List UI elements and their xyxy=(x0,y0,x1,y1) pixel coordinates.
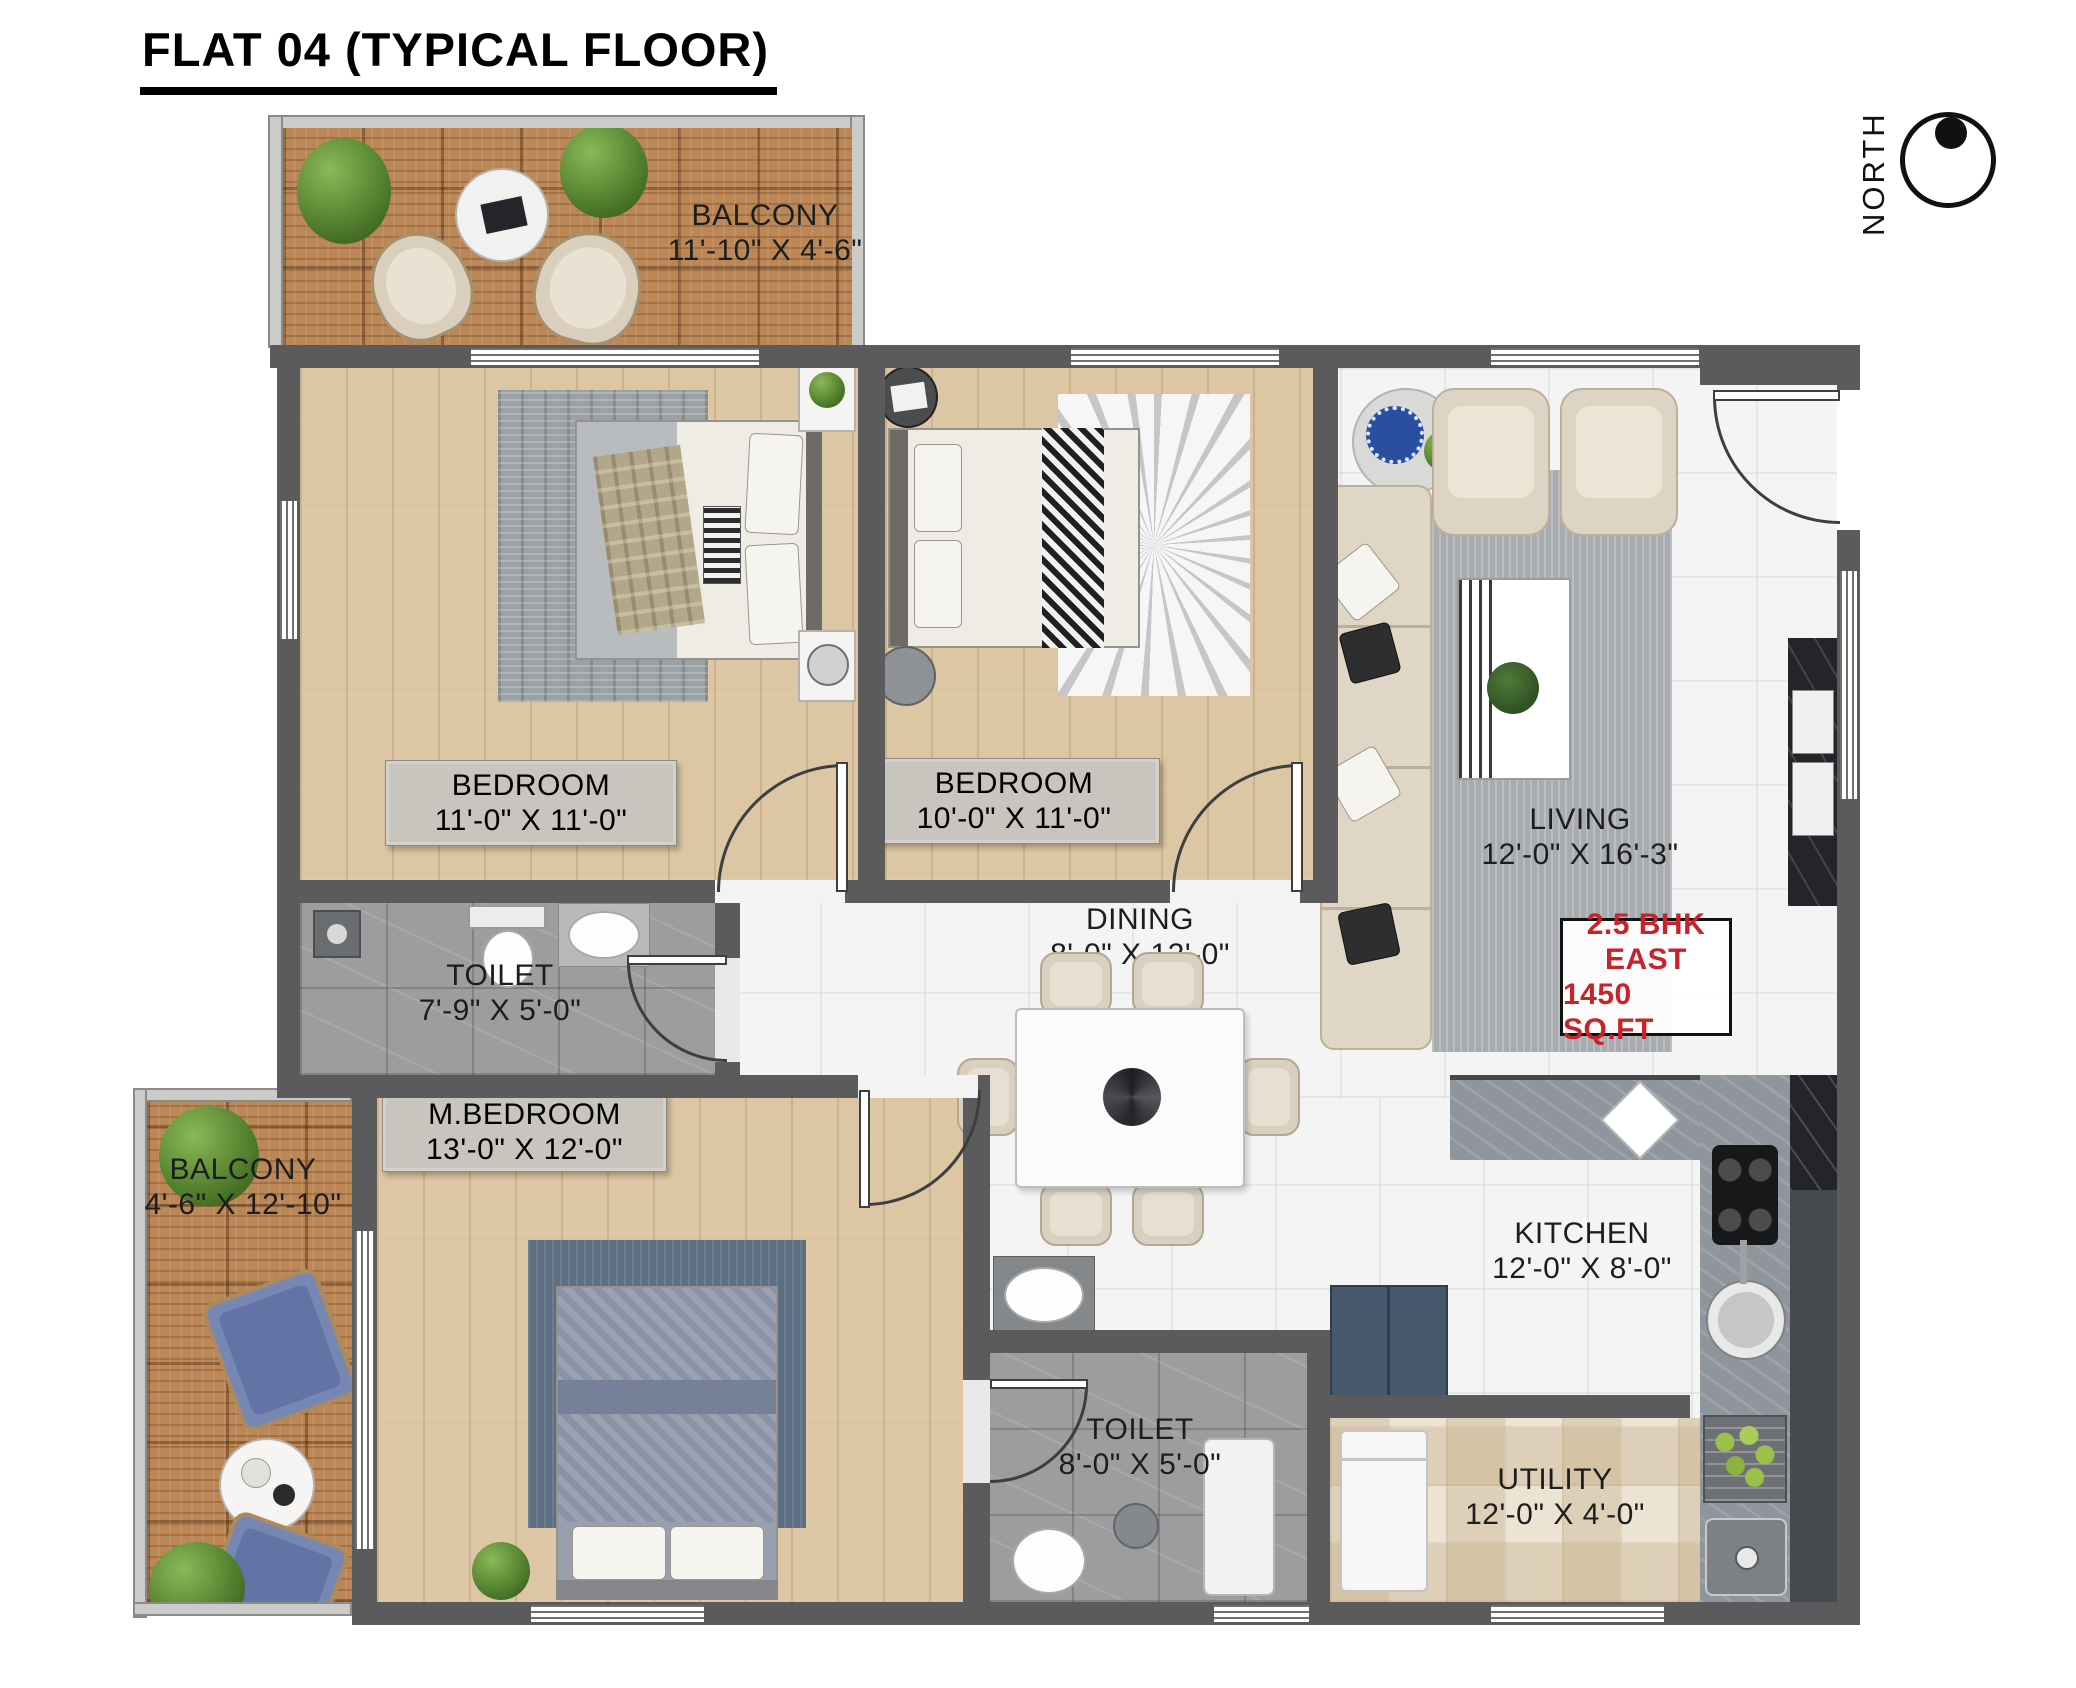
kitchen-label: KITCHEN 12'-0" X 8'-0" xyxy=(1492,1216,1672,1286)
bed-fold-band xyxy=(558,1380,776,1414)
unit-area: 1450 SQ.FT xyxy=(1563,977,1729,1047)
bed-checkered-runner xyxy=(1042,428,1104,648)
bed-headboard xyxy=(556,1580,778,1600)
bed-headboard xyxy=(806,420,822,662)
bed-headboard xyxy=(890,430,908,646)
window-living xyxy=(1490,347,1700,366)
round-mirror-icon xyxy=(878,366,938,428)
kitchen-backsplash xyxy=(1790,1075,1837,1602)
bedroom1-door-leaf xyxy=(836,762,848,892)
kitchen-counter xyxy=(1450,1075,1700,1160)
stove-hob-icon xyxy=(1712,1145,1778,1245)
window-toilet2-bottom xyxy=(1213,1604,1310,1623)
window-utility-bottom xyxy=(1490,1604,1665,1623)
dining-chair xyxy=(1132,952,1204,1016)
pan-handle-icon xyxy=(1740,1240,1747,1284)
wall-entry-corner xyxy=(1700,345,1860,385)
tv-cabinet-door xyxy=(1792,762,1834,836)
sofa-pillow xyxy=(1337,902,1401,966)
toilet1-door-leaf xyxy=(627,955,727,965)
sofa-pillow xyxy=(1338,621,1402,685)
coffee-table xyxy=(1457,578,1571,780)
bedroom2-wardrobe-label: BEDROOM 10'-0" X 11'-0" xyxy=(868,758,1160,844)
marble-splash xyxy=(1790,1075,1837,1190)
window-bedroom2 xyxy=(1070,347,1280,366)
balcony-lounge-chair xyxy=(199,1265,352,1435)
kitchen-cabinet xyxy=(1330,1285,1448,1397)
bed-pillow xyxy=(914,444,962,532)
tv-cabinet-door xyxy=(1792,690,1834,754)
veggie-sink xyxy=(1703,1415,1787,1503)
plate-icon xyxy=(273,1484,295,1506)
dining-chair xyxy=(1040,1182,1112,1246)
decor-plate-icon xyxy=(1366,406,1424,464)
pan-icon xyxy=(1708,1282,1784,1358)
compass-north-dot-icon xyxy=(1935,117,1967,149)
wash-counter xyxy=(993,1256,1095,1332)
bed-pillow xyxy=(744,433,803,536)
wall-bedroom-divider xyxy=(858,368,885,880)
nightstand xyxy=(798,362,856,432)
book-icon xyxy=(480,196,527,234)
bed-pillow xyxy=(572,1526,666,1580)
decor-plate-icon xyxy=(1600,1080,1679,1159)
wall-left-upper xyxy=(277,345,300,1098)
toilet1-label: TOILET 7'-9" X 5'-0" xyxy=(419,958,582,1028)
top-balcony-parapet-left xyxy=(268,115,283,348)
wall-toilet2-right xyxy=(1307,1353,1330,1602)
utility-label: UTILITY 12'-0" X 4'-0" xyxy=(1465,1462,1645,1532)
plant-icon xyxy=(472,1542,530,1600)
bed-pillow xyxy=(914,540,962,628)
balcony-table xyxy=(455,168,549,262)
floor-plan-canvas: FLAT 04 (TYPICAL FLOOR) NORTH BALCONY 11… xyxy=(0,0,2076,1688)
mirror-icon xyxy=(807,644,849,686)
master-bed xyxy=(556,1286,778,1600)
master-door-leaf xyxy=(859,1090,870,1208)
compass-circle-icon xyxy=(1900,112,1996,208)
kitchen-sink xyxy=(1705,1518,1787,1596)
nightstand xyxy=(798,630,856,702)
bedroom1-bed xyxy=(575,420,822,660)
plant-icon xyxy=(1487,662,1539,714)
plant-icon xyxy=(809,372,845,408)
wall-right xyxy=(1837,345,1860,1625)
unit-info-box: 2.5 BHK EAST 1450 SQ.FT xyxy=(1560,918,1732,1036)
wall-bedroom2-living xyxy=(1313,368,1338,903)
toilet-tank xyxy=(468,905,546,929)
unit-facing: EAST xyxy=(1605,942,1687,977)
wall-toilet2-top xyxy=(963,1330,1330,1353)
bedroom2-bed xyxy=(888,428,1140,648)
shower-head-icon xyxy=(327,924,347,944)
dining-chair xyxy=(1238,1058,1300,1136)
bedroom1-wardrobe-label: BEDROOM 11'-0" X 11'-0" xyxy=(385,760,677,846)
drain-icon xyxy=(1735,1546,1759,1570)
bed-pillow xyxy=(670,1526,764,1580)
balcony-plant-icon xyxy=(560,128,648,218)
entrance-opening xyxy=(1837,390,1860,530)
cabinet-divider xyxy=(1387,1287,1390,1395)
plate-icon xyxy=(241,1458,271,1488)
master-bedroom-wardrobe-label: M.BEDROOM 13'-0" X 12'-0" xyxy=(382,1092,667,1172)
table-centerpiece-icon xyxy=(1103,1068,1161,1126)
armchair xyxy=(1432,388,1550,536)
window-bedroom1-balcony xyxy=(470,347,760,366)
dining-chair xyxy=(1040,952,1112,1016)
washbasin-icon xyxy=(568,911,640,959)
balcony-top-label: BALCONY 11'-10" X 4'-6" xyxy=(668,198,863,268)
wall-utility-top xyxy=(1330,1395,1690,1418)
living-label: LIVING 12'-0" X 16'-3" xyxy=(1481,802,1678,872)
toilet-bowl-icon xyxy=(1012,1528,1086,1594)
bed-accent-pillow xyxy=(703,506,741,584)
balcony-plant-icon xyxy=(297,138,391,244)
window-bedroom1-left xyxy=(279,500,298,640)
stool xyxy=(876,646,936,706)
window-master-balcony-door xyxy=(354,1230,375,1550)
photo-icon xyxy=(890,382,927,412)
bed-pillow xyxy=(744,543,803,646)
washing-machine-icon xyxy=(1340,1430,1428,1592)
toilet2-door-leaf xyxy=(990,1379,1088,1389)
toilet2-door-opening xyxy=(963,1380,990,1483)
balcony-left-label: BALCONY 4'-6" X 12'-10" xyxy=(144,1152,341,1222)
window-master-bottom xyxy=(530,1604,705,1623)
washbasin-icon xyxy=(1004,1267,1084,1323)
machine-lid-line xyxy=(1342,1458,1426,1461)
bedroom2-door-leaf xyxy=(1291,762,1303,892)
left-balcony-parapet-bottom xyxy=(133,1602,352,1616)
dining-chair xyxy=(1132,1182,1204,1246)
north-label: NORTH xyxy=(1856,96,1892,236)
dining-table xyxy=(1015,1008,1245,1188)
tv-console xyxy=(1788,638,1837,906)
window-living-right xyxy=(1839,570,1858,800)
toilet2-label: TOILET 8'-0" X 5'-0" xyxy=(1059,1412,1222,1482)
shower-icon xyxy=(313,910,361,958)
floor-drain-icon xyxy=(1113,1503,1159,1549)
entrance-door-leaf xyxy=(1713,390,1840,401)
armchair xyxy=(1560,388,1678,536)
page-title: FLAT 04 (TYPICAL FLOOR) xyxy=(140,22,777,95)
unit-type: 2.5 BHK xyxy=(1587,907,1706,942)
